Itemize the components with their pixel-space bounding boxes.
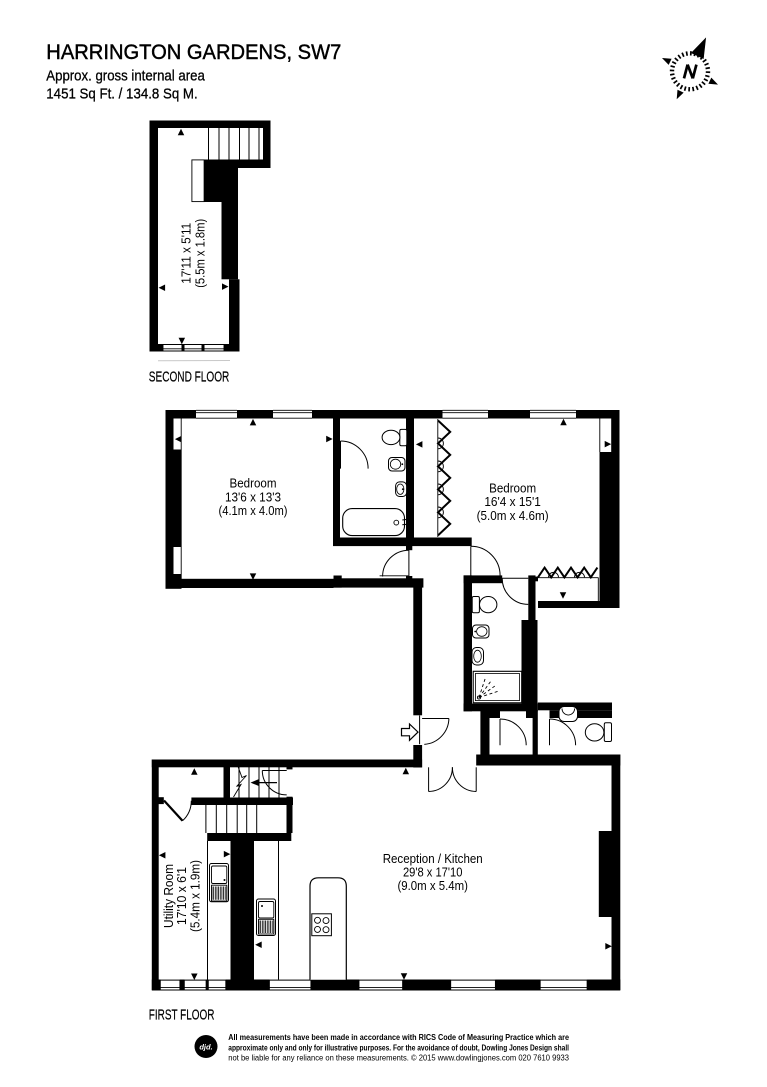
svg-text:approximate only and only for: approximate only and only for illustrati…	[228, 1043, 569, 1052]
svg-text:(4.1m x 4.0m): (4.1m x 4.0m)	[219, 503, 288, 518]
svg-text:HARRINGTON GARDENS, SW7: HARRINGTON GARDENS, SW7	[46, 40, 341, 64]
svg-text:17'11 x 5'11: 17'11 x 5'11	[178, 223, 193, 284]
svg-text:1451 Sq Ft. / 134.8 Sq M.: 1451 Sq Ft. / 134.8 Sq M.	[46, 85, 197, 102]
svg-text:SECOND FLOOR: SECOND FLOOR	[149, 368, 230, 385]
svg-text:(9.0m x 5.4m): (9.0m x 5.4m)	[397, 878, 468, 893]
svg-text:(5.0m x 4.6m): (5.0m x 4.6m)	[477, 508, 549, 523]
svg-text:(5.4m x 1.9m): (5.4m x 1.9m)	[188, 860, 203, 932]
svg-text:djd.: djd.	[199, 1042, 212, 1051]
svg-text:not be liable for any reliance: not be liable for any reliance on these …	[228, 1054, 569, 1063]
svg-text:(5.5m x 1.8m): (5.5m x 1.8m)	[192, 219, 207, 288]
svg-text:Approx. gross internal area: Approx. gross internal area	[46, 68, 205, 85]
svg-text:All measurements have been mad: All measurements have been made in accor…	[228, 1033, 569, 1042]
svg-text:FIRST FLOOR: FIRST FLOOR	[149, 1007, 215, 1024]
